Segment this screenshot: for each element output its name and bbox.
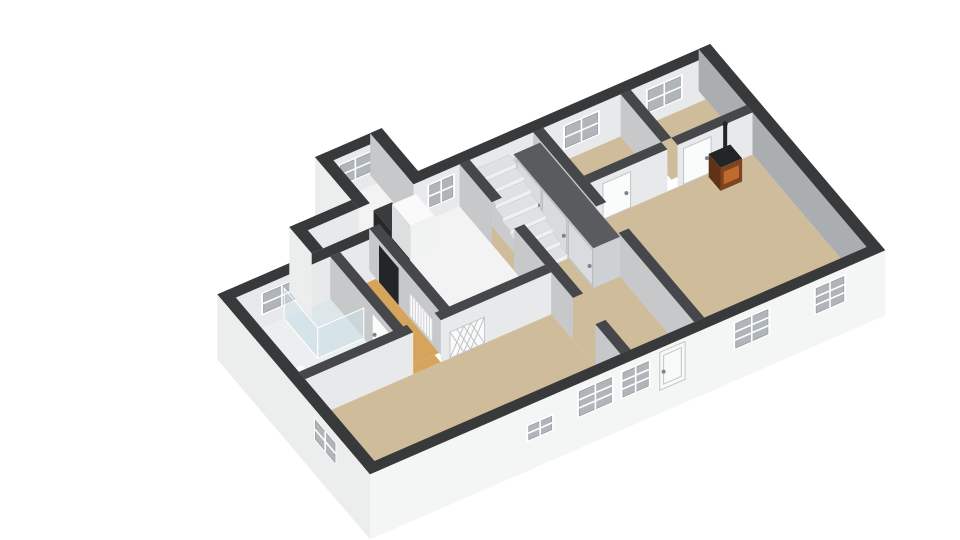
floorplan-canvas[interactable] — [0, 0, 960, 540]
stove-chimney — [723, 121, 728, 158]
floorplan-3d-view[interactable] — [0, 0, 960, 540]
